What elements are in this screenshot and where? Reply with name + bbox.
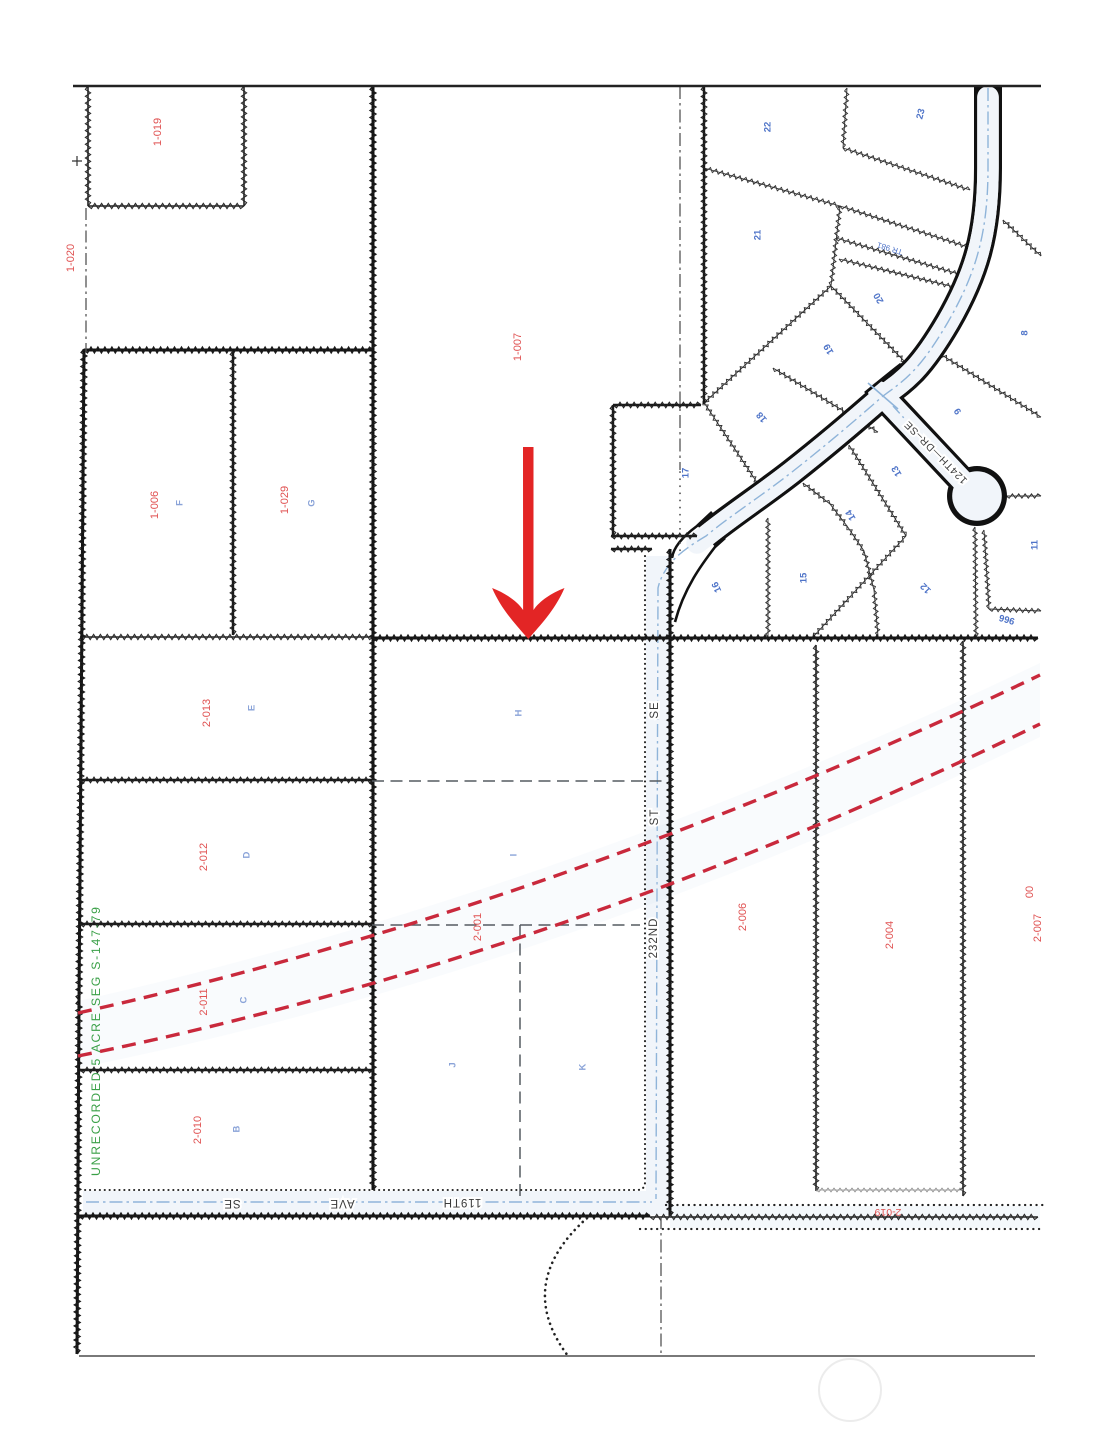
svg-text:ST: ST — [649, 809, 661, 826]
svg-text:2-006: 2-006 — [737, 903, 749, 931]
svg-text:2-007: 2-007 — [1032, 914, 1044, 942]
svg-text:K: K — [578, 1063, 589, 1070]
svg-text:J: J — [448, 1062, 459, 1067]
svg-text:1-019: 1-019 — [152, 118, 164, 146]
svg-text:1-020: 1-020 — [65, 244, 77, 272]
svg-text:2-012: 2-012 — [198, 843, 210, 871]
svg-text:119TH: 119TH — [443, 1196, 482, 1208]
svg-text:22: 22 — [763, 122, 774, 133]
svg-text:00: 00 — [1024, 886, 1036, 898]
svg-text:2-013: 2-013 — [201, 699, 213, 727]
svg-text:SE: SE — [649, 701, 661, 718]
svg-text:I: I — [509, 854, 520, 857]
svg-text:1-006: 1-006 — [149, 491, 161, 519]
svg-text:232ND: 232ND — [648, 918, 660, 959]
svg-text:21: 21 — [753, 229, 764, 240]
svg-text:15: 15 — [799, 572, 810, 583]
svg-text:2-004: 2-004 — [884, 921, 896, 949]
svg-text:2-010: 2-010 — [192, 1116, 204, 1144]
svg-text:2-011: 2-011 — [198, 988, 210, 1015]
svg-text:D: D — [242, 851, 253, 858]
svg-text:AVE: AVE — [329, 1197, 354, 1209]
svg-text:B: B — [232, 1125, 243, 1132]
svg-text:1-007: 1-007 — [512, 333, 524, 361]
svg-text:1-029: 1-029 — [279, 486, 291, 514]
svg-text:H: H — [514, 709, 525, 716]
svg-text:G: G — [307, 499, 318, 506]
svg-text:SE: SE — [223, 1197, 240, 1209]
svg-text:2-019: 2-019 — [874, 1206, 901, 1218]
svg-text:C: C — [239, 996, 250, 1003]
svg-text:8: 8 — [1020, 330, 1031, 335]
svg-text:17: 17 — [681, 468, 692, 479]
svg-text:11: 11 — [1030, 539, 1041, 550]
svg-text:2-001: 2-001 — [472, 913, 484, 941]
svg-text:UNRECORDED 5 ACRE SEG S-147-79: UNRECORDED 5 ACRE SEG S-147-79 — [89, 905, 103, 1176]
svg-text:F: F — [175, 500, 186, 506]
svg-text:E: E — [247, 705, 258, 711]
